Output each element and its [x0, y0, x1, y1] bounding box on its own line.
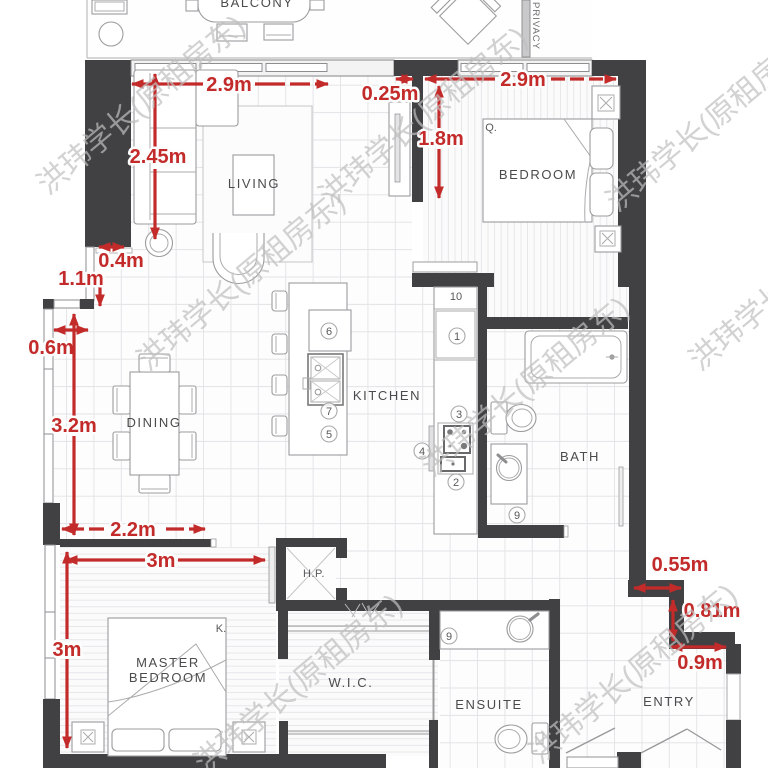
svg-text:Q.: Q. [485, 122, 497, 134]
svg-text:1.1m: 1.1m [58, 268, 104, 290]
svg-text:BEDROOM: BEDROOM [129, 670, 207, 685]
svg-text:0.6m: 0.6m [28, 337, 74, 359]
svg-text:5: 5 [326, 429, 332, 441]
svg-text:KITCHEN: KITCHEN [353, 388, 421, 403]
svg-text:0.25m: 0.25m [362, 83, 419, 105]
svg-text:PRIVACY: PRIVACY [530, 2, 541, 50]
svg-text:2.2m: 2.2m [110, 519, 156, 541]
svg-text:LIVING: LIVING [228, 176, 280, 191]
svg-text:0.55m: 0.55m [652, 554, 709, 576]
svg-text:9: 9 [514, 510, 520, 522]
svg-text:10: 10 [450, 291, 462, 303]
svg-text:ENTRY: ENTRY [643, 694, 695, 709]
svg-text:MASTER: MASTER [136, 655, 200, 670]
svg-text:0.9m: 0.9m [677, 652, 723, 674]
svg-text:9: 9 [446, 631, 452, 643]
svg-text:BALCONY: BALCONY [220, 0, 293, 10]
svg-text:2.9m: 2.9m [500, 69, 546, 91]
svg-text:K.: K. [216, 623, 226, 635]
svg-text:7: 7 [326, 406, 332, 418]
svg-text:6: 6 [326, 326, 332, 338]
svg-text:2.45m: 2.45m [130, 146, 187, 168]
svg-text:3m: 3m [53, 639, 82, 661]
svg-text:2: 2 [453, 477, 459, 489]
svg-text:1: 1 [454, 331, 460, 343]
svg-text:2.9m: 2.9m [206, 74, 252, 96]
svg-text:H.P.: H.P. [303, 568, 325, 580]
svg-text:3m: 3m [147, 550, 176, 572]
svg-text:W.I.C.: W.I.C. [329, 675, 374, 690]
svg-text:0.4m: 0.4m [98, 250, 144, 272]
svg-text:ENSUITE: ENSUITE [455, 697, 523, 712]
svg-text:BEDROOM: BEDROOM [499, 167, 577, 182]
svg-text:DINING: DINING [126, 415, 181, 430]
svg-text:3.2m: 3.2m [51, 415, 97, 437]
svg-text:BATH: BATH [560, 449, 600, 464]
